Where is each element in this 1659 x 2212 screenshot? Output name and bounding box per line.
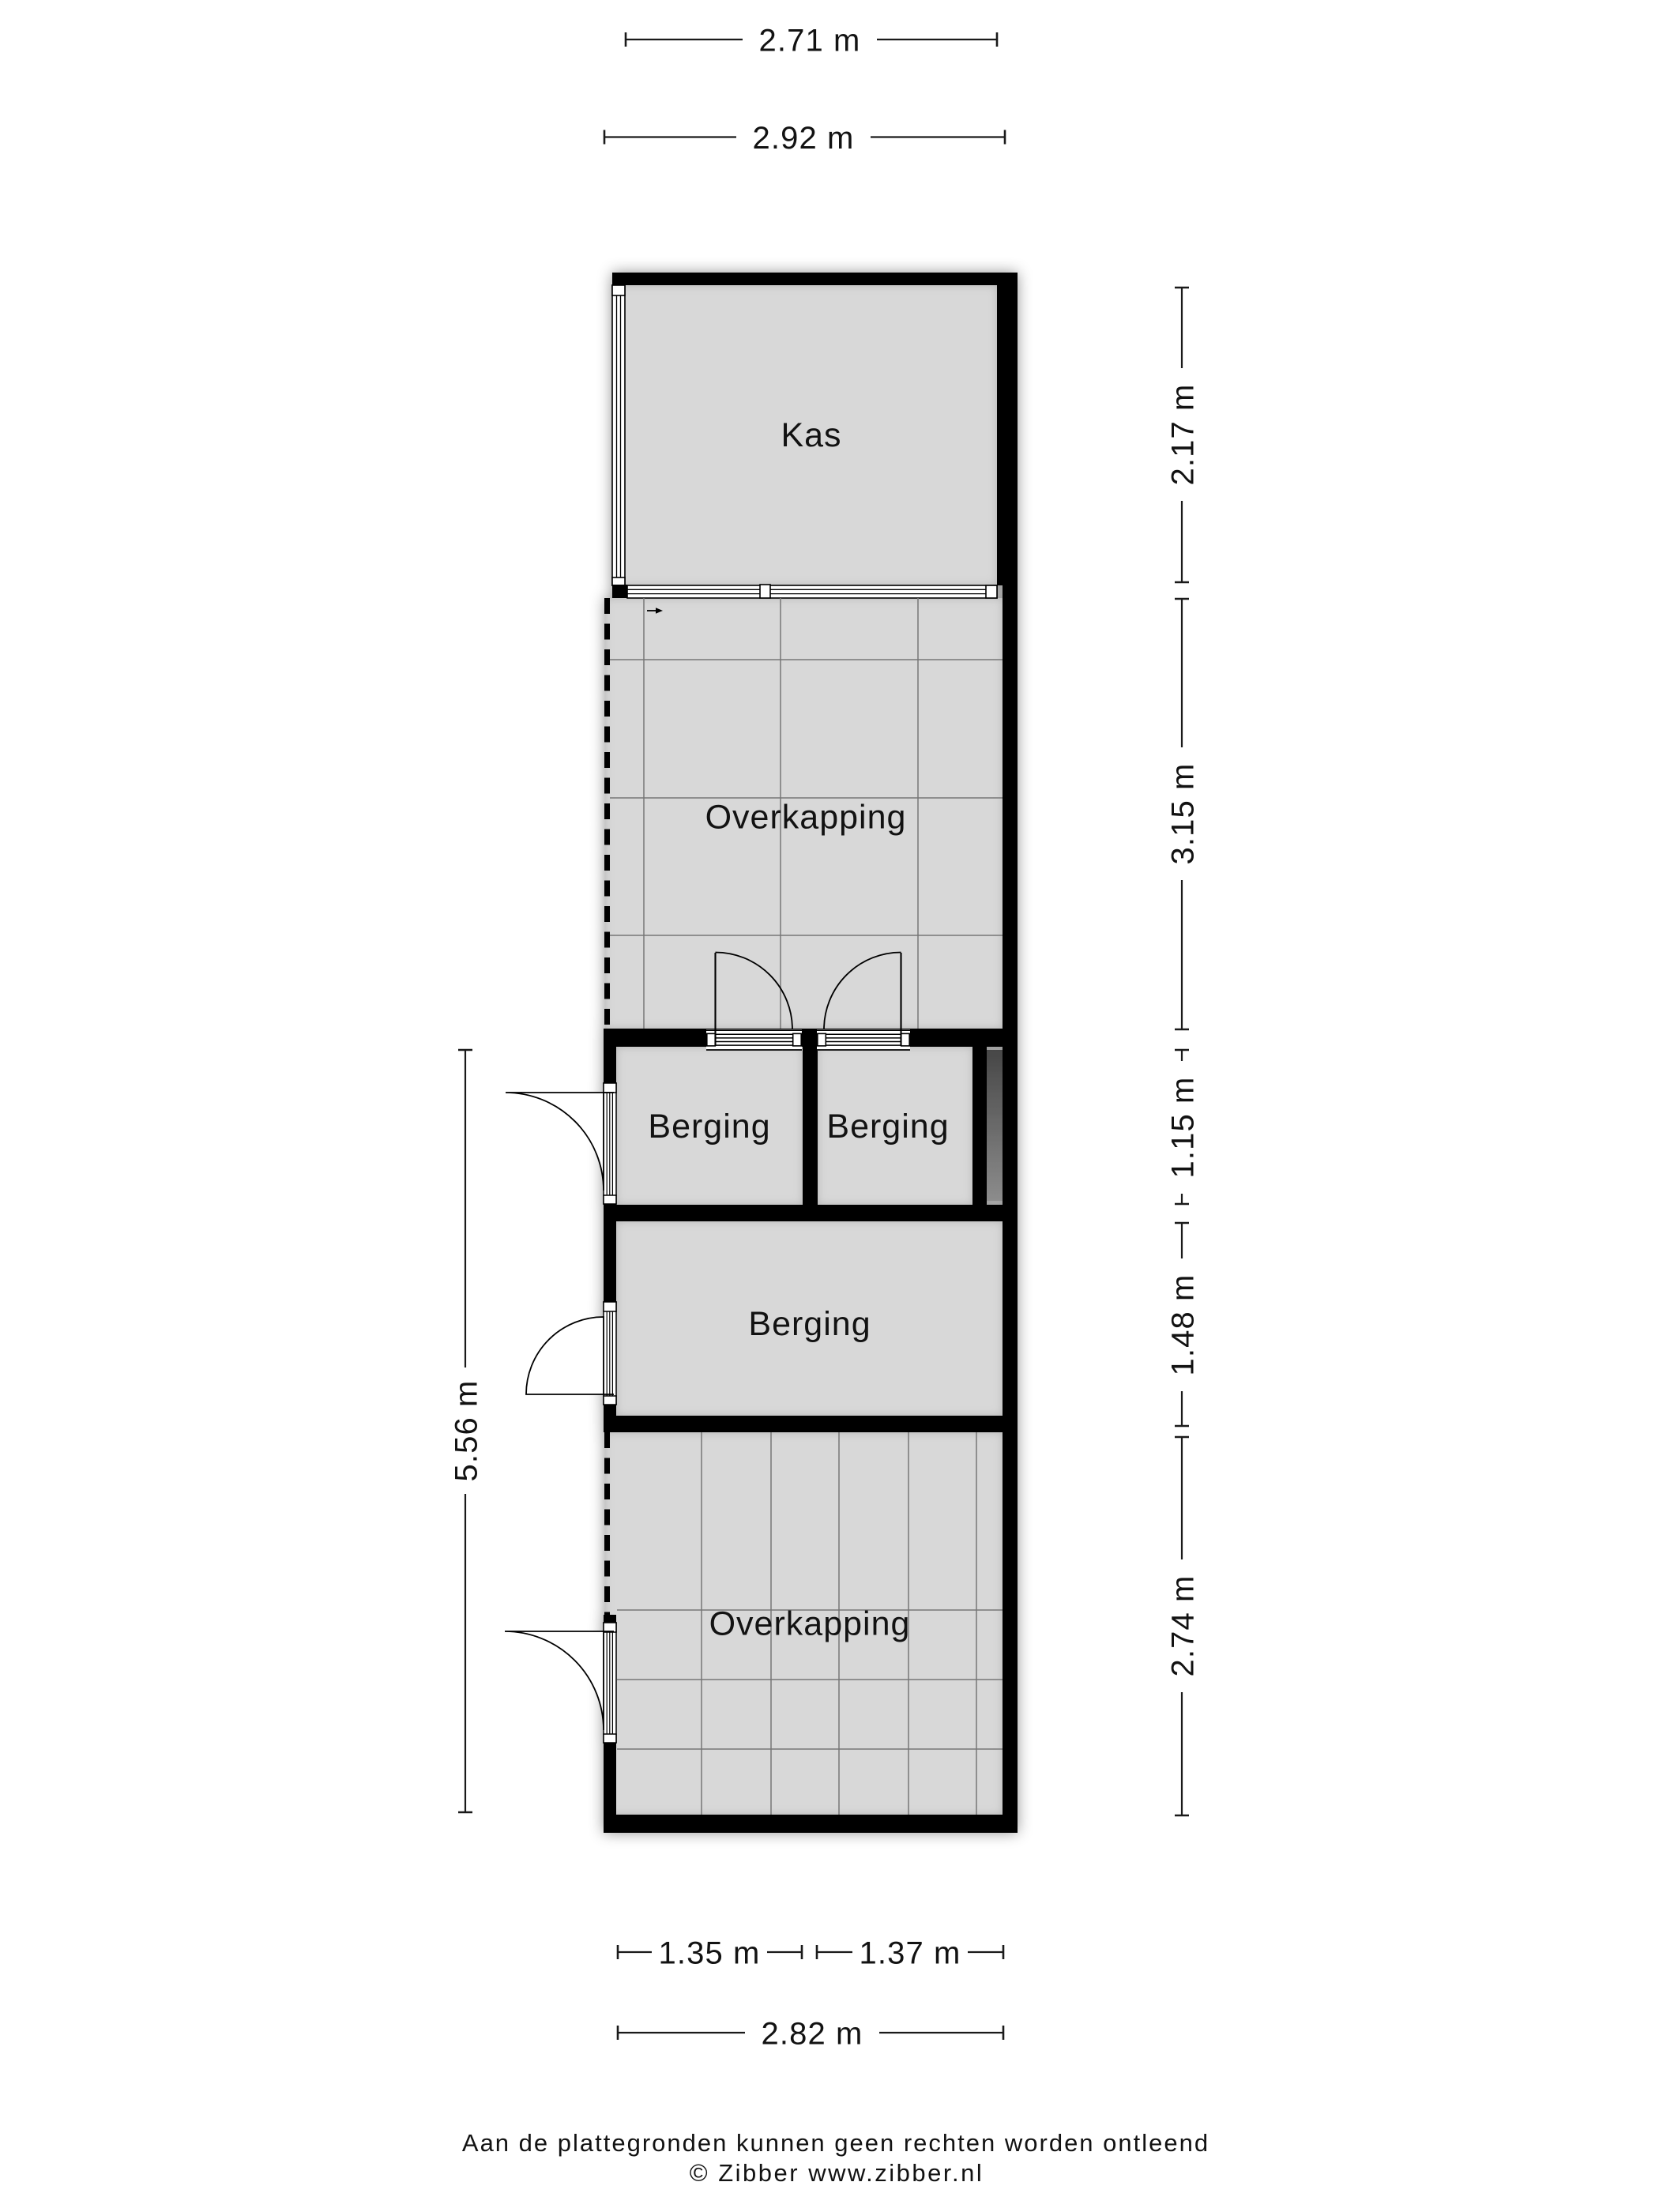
svg-text:1.37 m: 1.37 m [860,1936,961,1971]
svg-text:2.74 m: 2.74 m [1166,1575,1201,1677]
svg-text:© Zibber www.zibber.nl: © Zibber www.zibber.nl [690,2159,984,2187]
svg-text:Kas: Kas [781,416,841,454]
svg-text:2.92 m: 2.92 m [753,121,855,156]
svg-text:2.71 m: 2.71 m [759,24,861,58]
svg-text:2.82 m: 2.82 m [762,2017,863,2052]
svg-text:Overkapping: Overkapping [705,799,907,837]
svg-text:Berging: Berging [826,1108,949,1145]
svg-text:2.17 m: 2.17 m [1166,384,1201,486]
svg-text:Overkapping: Overkapping [709,1605,911,1643]
svg-text:5.56 m: 5.56 m [450,1380,484,1482]
svg-text:1.15 m: 1.15 m [1166,1077,1201,1179]
svg-text:Berging: Berging [748,1305,871,1343]
svg-text:1.35 m: 1.35 m [659,1936,761,1971]
svg-text:Berging: Berging [648,1108,770,1145]
svg-text:Aan de plattegronden kunnen ge: Aan de plattegronden kunnen geen rechten… [462,2129,1209,2157]
svg-text:1.48 m: 1.48 m [1166,1274,1201,1376]
svg-text:3.15 m: 3.15 m [1166,763,1201,865]
